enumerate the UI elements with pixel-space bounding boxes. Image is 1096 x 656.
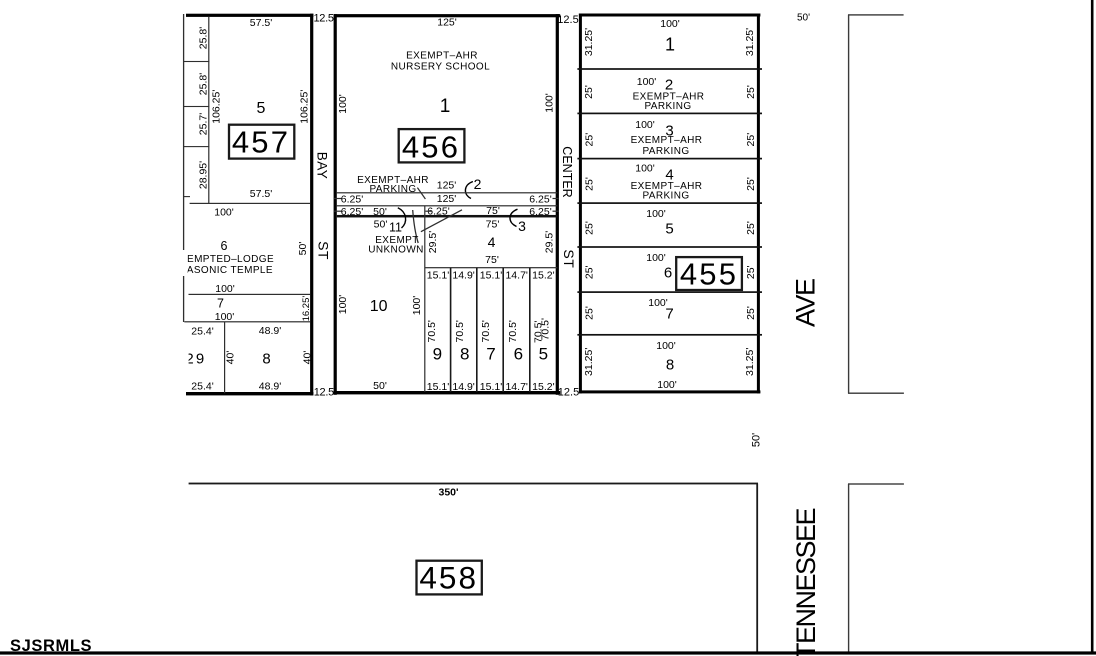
svg-text:31.25': 31.25'	[744, 28, 756, 56]
svg-text:31.25': 31.25'	[583, 348, 595, 376]
svg-text:57.5': 57.5'	[250, 17, 272, 29]
svg-text:100': 100'	[657, 379, 677, 391]
svg-text:BAY: BAY	[314, 152, 329, 180]
svg-text:7: 7	[217, 297, 224, 311]
svg-text:25.7': 25.7'	[197, 113, 209, 135]
svg-text:28.95': 28.95'	[197, 161, 209, 189]
svg-text:29.5': 29.5'	[427, 231, 439, 253]
svg-text:100': 100'	[656, 340, 676, 352]
svg-text:100': 100'	[637, 76, 657, 88]
svg-text:350': 350'	[438, 486, 458, 498]
svg-text:9: 9	[433, 345, 442, 364]
svg-text:PARKING: PARKING	[642, 146, 689, 157]
svg-text:100': 100'	[215, 283, 235, 295]
svg-text:25': 25'	[745, 265, 757, 279]
svg-text:70.5': 70.5'	[507, 320, 519, 342]
svg-text:455: 455	[680, 256, 738, 291]
svg-text:PARKING: PARKING	[644, 101, 691, 112]
svg-text:7: 7	[665, 305, 673, 322]
svg-text:CENTER: CENTER	[560, 146, 574, 197]
svg-text:70.5': 70.5'	[540, 318, 552, 340]
svg-text:48.9': 48.9'	[259, 380, 281, 392]
svg-text:106.25': 106.25'	[210, 90, 222, 124]
svg-text:UNKNOWN: UNKNOWN	[368, 244, 424, 255]
svg-text:PARKING: PARKING	[369, 184, 416, 195]
svg-text:100': 100'	[337, 94, 349, 114]
svg-text:1: 1	[665, 35, 675, 55]
svg-text:125': 125'	[437, 179, 457, 191]
svg-text:12.5: 12.5	[557, 14, 578, 26]
svg-text:125': 125'	[437, 193, 457, 205]
svg-text:16.25': 16.25'	[301, 296, 312, 322]
svg-text:25': 25'	[583, 85, 595, 99]
svg-text:25.8': 25.8'	[197, 27, 209, 49]
svg-text:25': 25'	[584, 306, 596, 320]
svg-text:14.7': 14.7'	[505, 270, 527, 282]
svg-text:29.5': 29.5'	[543, 231, 555, 253]
svg-text:25.4': 25.4'	[191, 325, 213, 337]
svg-text:125': 125'	[437, 16, 457, 28]
svg-text:MASONIC TEMPLE: MASONIC TEMPLE	[178, 265, 273, 276]
svg-text:50': 50'	[374, 219, 388, 231]
svg-text:57.5': 57.5'	[250, 188, 272, 200]
svg-text:100': 100'	[337, 295, 349, 315]
svg-text:458: 458	[419, 559, 478, 595]
svg-text:14.7': 14.7'	[505, 381, 527, 393]
svg-text:15.2': 15.2'	[532, 381, 554, 393]
svg-text:6.25': 6.25'	[529, 194, 551, 206]
svg-text:48.9': 48.9'	[259, 325, 281, 337]
svg-text:40': 40'	[302, 351, 314, 365]
svg-text:6: 6	[514, 345, 523, 364]
svg-text:31.25': 31.25'	[744, 348, 756, 376]
svg-text:25': 25'	[584, 265, 596, 279]
svg-text:50': 50'	[751, 433, 763, 447]
svg-text:6: 6	[221, 239, 228, 253]
svg-text:6: 6	[664, 265, 672, 282]
svg-text:12.5: 12.5	[313, 12, 333, 24]
svg-text:25': 25'	[745, 221, 757, 235]
svg-text:457: 457	[232, 125, 290, 160]
svg-text:25': 25'	[584, 221, 596, 235]
svg-text:1: 1	[440, 96, 451, 117]
svg-text:25': 25'	[745, 306, 757, 320]
svg-text:8: 8	[262, 350, 270, 367]
svg-text:75': 75'	[486, 218, 500, 230]
svg-text:100': 100'	[646, 208, 666, 220]
svg-text:456: 456	[402, 129, 460, 164]
svg-text:100': 100'	[635, 119, 655, 131]
svg-text:25.4': 25.4'	[191, 380, 213, 392]
svg-text:ST: ST	[561, 249, 577, 268]
svg-text:25': 25'	[745, 177, 757, 191]
svg-text:70.5': 70.5'	[480, 320, 492, 342]
svg-text:25': 25'	[745, 133, 757, 147]
svg-text:25.8': 25.8'	[197, 73, 209, 95]
svg-text:10: 10	[370, 298, 388, 315]
svg-text:12.5: 12.5	[558, 386, 579, 398]
svg-text:8: 8	[460, 345, 469, 364]
svg-text:9: 9	[196, 350, 204, 367]
svg-text:6.25': 6.25'	[341, 194, 363, 206]
svg-text:7: 7	[486, 345, 495, 364]
svg-text:ST: ST	[316, 241, 332, 260]
svg-text:75': 75'	[485, 254, 499, 266]
svg-text:25': 25'	[584, 133, 596, 147]
svg-text:5: 5	[257, 100, 266, 117]
svg-text:50': 50'	[373, 380, 387, 392]
svg-text:PARKING: PARKING	[642, 191, 689, 202]
svg-text:5: 5	[539, 345, 548, 364]
svg-text:TENNESSEE: TENNESSEE	[791, 508, 821, 656]
svg-text:XEMPTED–LODGE: XEMPTED–LODGE	[180, 254, 274, 265]
svg-text:100': 100'	[214, 206, 234, 218]
svg-text:31.25': 31.25'	[583, 28, 595, 56]
svg-text:14.9': 14.9'	[452, 270, 474, 282]
svg-text:15.1': 15.1'	[480, 270, 502, 282]
svg-text:25': 25'	[745, 85, 757, 99]
svg-text:100': 100'	[646, 252, 666, 264]
svg-text:100': 100'	[635, 163, 655, 175]
svg-text:106.25': 106.25'	[298, 90, 310, 124]
svg-text:70.5': 70.5'	[426, 320, 438, 342]
svg-text:70.5': 70.5'	[454, 320, 466, 342]
svg-text:5: 5	[665, 220, 673, 237]
svg-text:40': 40'	[225, 351, 237, 365]
svg-text:50': 50'	[797, 13, 810, 24]
svg-text:100': 100'	[411, 296, 423, 316]
svg-text:8: 8	[666, 356, 674, 373]
svg-text:15.1': 15.1'	[427, 381, 449, 393]
svg-text:15.2': 15.2'	[532, 270, 554, 282]
svg-text:SJSRMLS: SJSRMLS	[10, 637, 92, 655]
svg-text:12.5: 12.5	[314, 386, 334, 398]
svg-text:4: 4	[488, 234, 496, 250]
svg-text:AVE: AVE	[790, 279, 820, 327]
svg-text:15.1': 15.1'	[427, 270, 449, 282]
svg-text:EXEMPT–AHR: EXEMPT–AHR	[406, 51, 478, 62]
svg-text:11: 11	[389, 221, 402, 235]
svg-text:EXEMPT–AHR: EXEMPT–AHR	[631, 135, 703, 146]
svg-text:15.1': 15.1'	[480, 381, 502, 393]
svg-text:100': 100'	[543, 93, 555, 113]
svg-text:3: 3	[518, 218, 526, 234]
svg-text:50': 50'	[297, 242, 309, 256]
svg-text:100': 100'	[660, 18, 680, 30]
svg-text:14.9': 14.9'	[452, 381, 474, 393]
svg-text:2: 2	[474, 176, 482, 192]
svg-text:25': 25'	[584, 177, 596, 191]
svg-text:NURSERY SCHOOL: NURSERY SCHOOL	[391, 62, 490, 73]
